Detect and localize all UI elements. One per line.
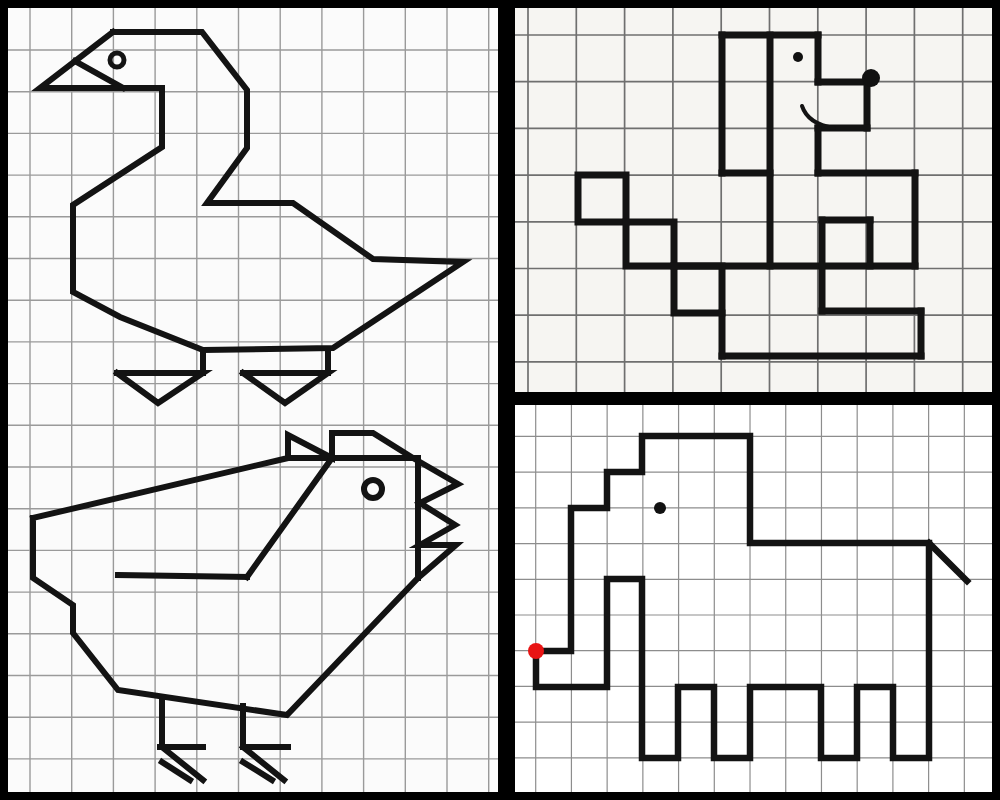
goose-line — [243, 373, 328, 403]
goose-eye — [110, 53, 124, 67]
dog-panel — [515, 8, 992, 392]
chicken-eye — [364, 480, 382, 498]
goose-chicken-panel-grid — [8, 8, 498, 792]
dog-square — [578, 175, 626, 222]
elephant-line — [929, 543, 967, 581]
chicken-line — [247, 458, 332, 577]
elephant-panel — [515, 405, 992, 792]
goose-line — [117, 373, 203, 403]
elephant-panel-grid — [515, 405, 992, 792]
dog-panel-svg — [515, 8, 992, 392]
elephant-eye — [654, 502, 666, 514]
dog-eye — [793, 52, 803, 62]
chicken-line — [118, 575, 247, 577]
dog-square — [674, 266, 722, 313]
goose-chicken-panel-svg — [8, 8, 498, 792]
chicken-figure — [33, 433, 458, 780]
dog-figure — [578, 35, 921, 356]
elephant-panel-svg — [515, 405, 992, 792]
dog-square — [626, 222, 674, 266]
dog-nose — [862, 69, 880, 87]
goose-chicken-panel — [8, 8, 498, 792]
elephant-start-dot — [528, 643, 544, 659]
worksheet-collage — [0, 0, 1000, 800]
elephant-figure — [528, 436, 967, 758]
elephant-line — [536, 436, 929, 758]
